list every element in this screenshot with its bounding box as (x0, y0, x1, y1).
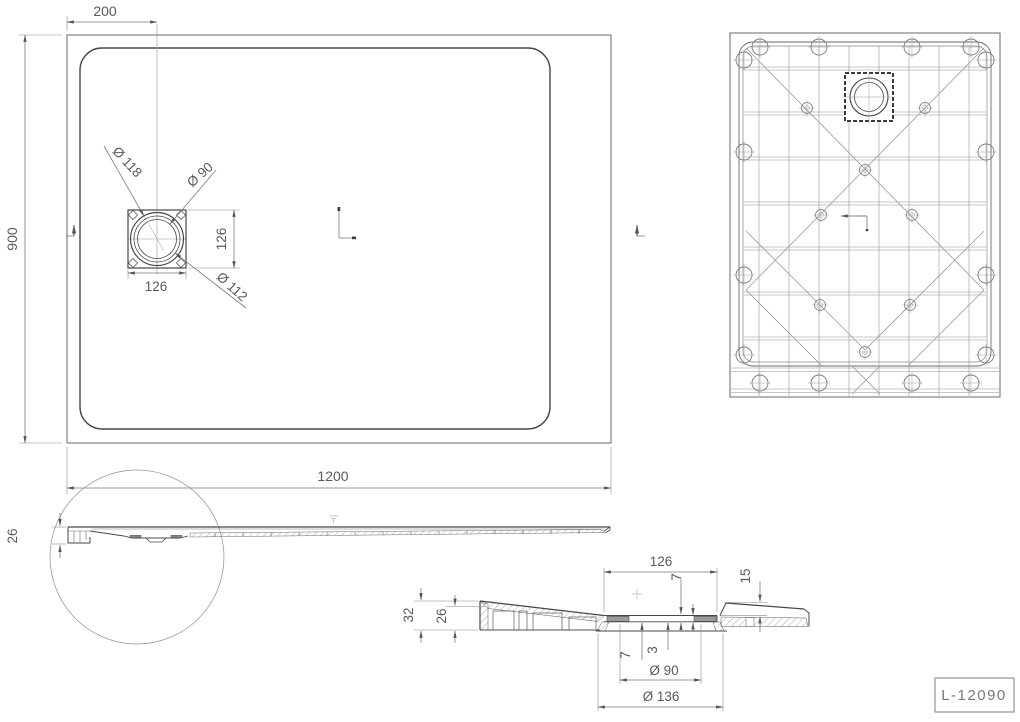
part-number: L-12090 (941, 687, 1007, 704)
section-cut-arrow-right (637, 225, 645, 236)
label-dia90: Ø 90 (184, 159, 216, 190)
section-right-side (717, 603, 809, 627)
dim-side-26-label: 26 (5, 528, 20, 543)
dim-plan-height: 900 (4, 35, 62, 443)
dim-section-7-top-label: 7 (669, 573, 684, 581)
dim-section-spout-depth: 7 (618, 623, 642, 660)
dim-section-pad-thickness: 3 (645, 604, 693, 654)
bottom-view (730, 33, 1000, 397)
section-drain-recess (596, 616, 727, 632)
dim-plan-200-label: 200 (93, 3, 117, 19)
cad-drawing: 200 900 1200 126 126 (0, 0, 1020, 722)
title-block: L-12090 (935, 678, 1014, 712)
section-center-cross (632, 589, 642, 599)
section-view: 126 7 15 32 26 (401, 554, 809, 711)
dim-section-32-label: 32 (401, 607, 416, 622)
dim-section-15-label: 15 (738, 568, 753, 583)
bottom-center-mark (841, 216, 868, 231)
side-rib-band (190, 530, 606, 538)
dim-plan-drain-width-label: 126 (145, 279, 168, 294)
dim-side-height: 26 (5, 513, 66, 558)
drawing-sheet: 200 900 1200 126 126 (0, 0, 1020, 722)
dim-plan-1200-label: 1200 (317, 468, 348, 484)
dim-section-dia90-label: Ø 90 (649, 663, 678, 678)
dim-plan-drain-offset: 200 (67, 3, 157, 31)
plan-inner-rim (80, 48, 550, 429)
dim-plan-900-label: 900 (4, 227, 20, 251)
detail-circle (50, 470, 224, 644)
dim-section-126-label: 126 (650, 554, 673, 569)
plan-center-mark (338, 207, 356, 239)
bottom-drain (843, 71, 895, 123)
dim-section-26-label: 26 (434, 608, 449, 623)
dim-section-recess-depth: 7 (669, 573, 684, 631)
side-ref-mark (329, 516, 338, 523)
side-drain-recess (124, 535, 188, 542)
dim-plan-drain-height-label: 126 (214, 228, 229, 251)
label-dia112: Ø 112 (214, 269, 251, 304)
dim-section-recess-width: 126 (604, 554, 717, 612)
label-dia118: Ø 118 (110, 144, 145, 180)
dim-section-inner-height: 26 (434, 595, 486, 643)
dim-plan-drain-height: 126 (188, 210, 240, 268)
leader-drain-flange-dia: Ø 112 (175, 253, 250, 308)
plan-view: 200 900 1200 126 126 (4, 3, 645, 494)
dim-section-3-label: 3 (645, 646, 660, 654)
dim-section-dia136-label: Ø 136 (643, 689, 680, 704)
